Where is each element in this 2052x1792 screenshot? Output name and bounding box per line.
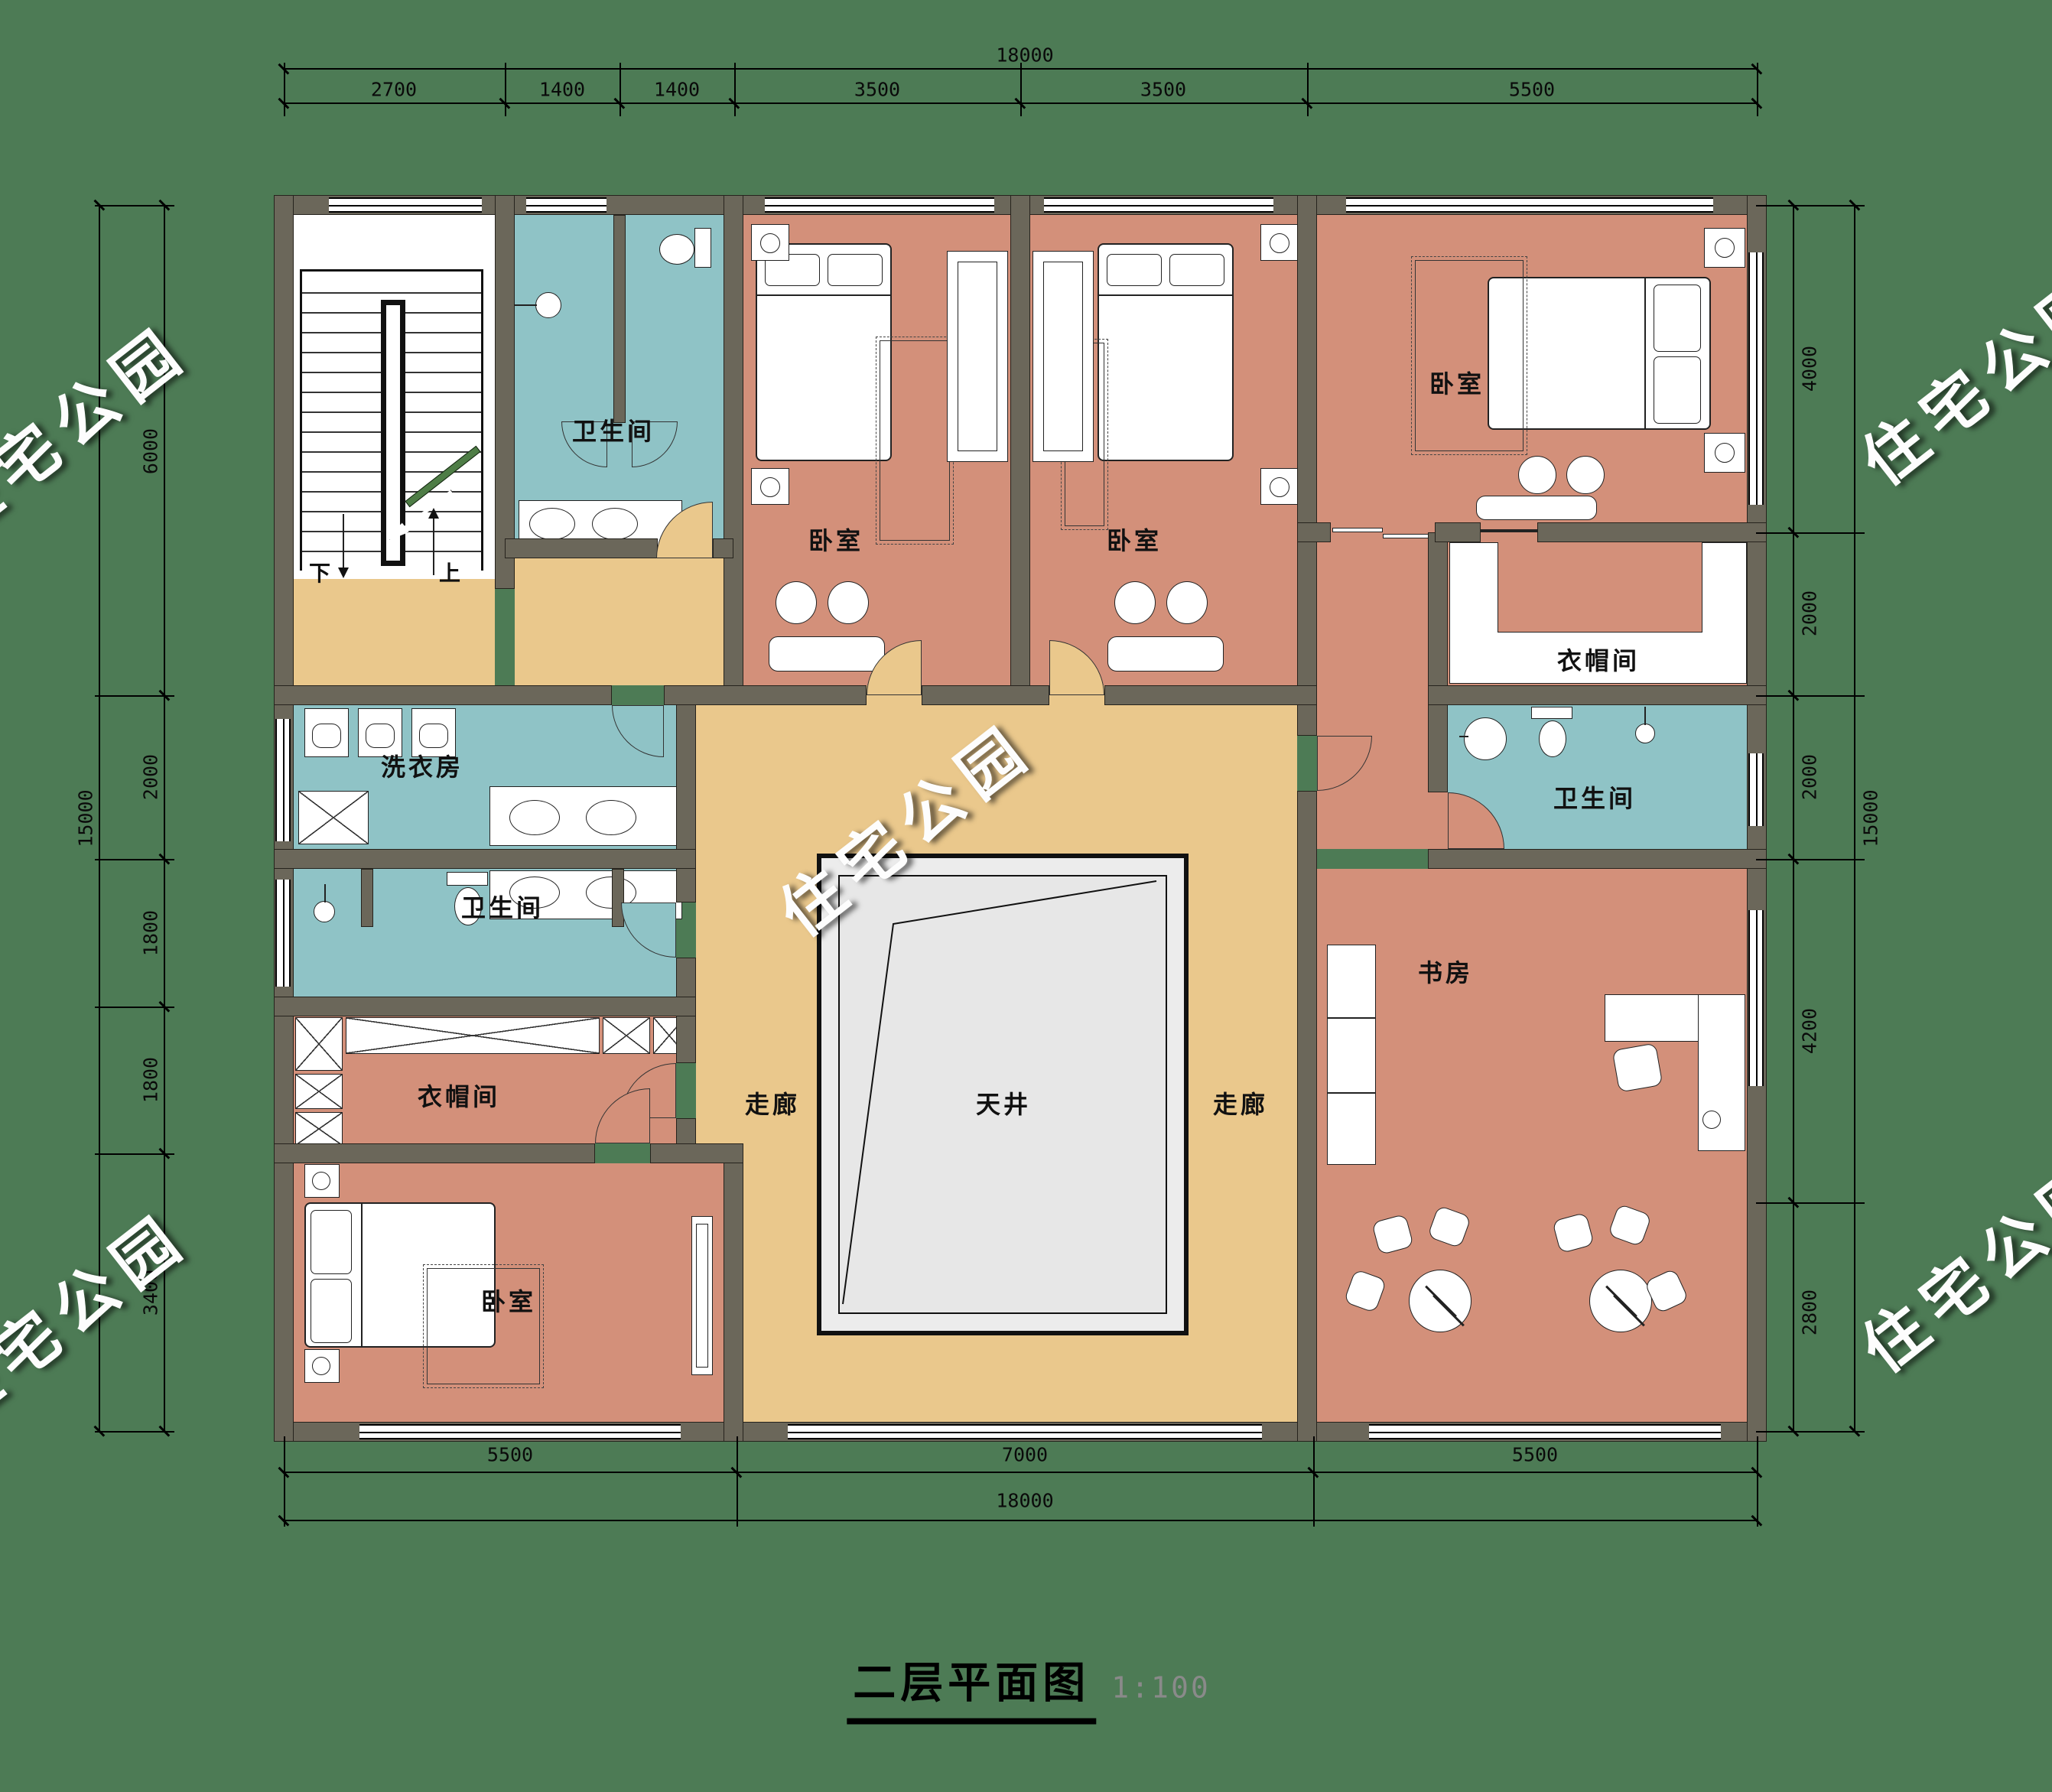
dim-bottom-3: 5500 xyxy=(1512,1444,1558,1466)
stool xyxy=(1518,456,1556,494)
drain xyxy=(314,901,335,922)
pillow xyxy=(311,1210,352,1274)
shower-tray xyxy=(298,791,369,844)
wall xyxy=(1428,685,1767,705)
dim-extension-line xyxy=(737,1436,738,1527)
corridor-floor xyxy=(294,579,495,685)
stool xyxy=(1166,581,1208,624)
wardrobe xyxy=(603,1017,650,1054)
dim-left-total: 15000 xyxy=(75,789,97,847)
dim-extension-line xyxy=(1756,1431,1865,1433)
wall xyxy=(676,695,696,903)
dim-extension-line xyxy=(95,205,174,207)
sink xyxy=(592,508,638,540)
pillow xyxy=(1107,254,1162,286)
bench xyxy=(769,636,885,672)
dim-right-3: 2000 xyxy=(1799,754,1821,800)
pillow xyxy=(828,254,883,286)
dim-bottom-1: 5500 xyxy=(487,1444,533,1466)
lamp xyxy=(312,1357,330,1375)
wall xyxy=(664,685,867,705)
dim-extension-line xyxy=(1307,63,1309,116)
dim-extension-line xyxy=(505,63,506,116)
wall xyxy=(1104,685,1317,705)
window xyxy=(1748,252,1764,505)
drain-line xyxy=(1644,707,1646,725)
wall xyxy=(274,1143,595,1163)
window xyxy=(275,719,291,841)
wall xyxy=(724,1153,743,1442)
drain-line xyxy=(324,884,326,903)
wall xyxy=(1435,522,1481,542)
dim-extension-line xyxy=(95,695,174,697)
wall xyxy=(1297,522,1331,542)
label-master-bedroom: 卧室 xyxy=(1429,365,1485,400)
toilet-tank xyxy=(694,228,711,268)
dim-left-1: 6000 xyxy=(140,428,162,474)
window xyxy=(359,1424,681,1439)
label-bedroom-b: 卧室 xyxy=(1107,522,1162,557)
dim-line xyxy=(284,1472,1757,1473)
window xyxy=(1748,910,1764,1086)
lamp xyxy=(760,477,780,497)
dim-extension-line xyxy=(284,1436,285,1527)
window xyxy=(1346,197,1713,213)
dim-right-2: 2000 xyxy=(1799,590,1821,636)
rug xyxy=(880,340,950,541)
sliding-door xyxy=(1383,534,1433,538)
drain xyxy=(1635,724,1655,743)
label-cloakroom-right: 衣帽间 xyxy=(1557,642,1640,677)
rug xyxy=(1415,260,1524,451)
bed-line xyxy=(361,1204,363,1346)
bed-line xyxy=(1099,294,1232,296)
wall xyxy=(650,1143,743,1163)
pillow xyxy=(1654,356,1701,424)
label-bedroom-bottomleft: 卧室 xyxy=(481,1283,536,1318)
dim-top-6: 5500 xyxy=(1509,79,1555,101)
stair-arrow-up-head xyxy=(428,508,439,519)
wall xyxy=(1297,195,1317,695)
dim-extension-line xyxy=(1313,1436,1315,1527)
bed-line xyxy=(757,294,890,296)
label-bedroom-a: 卧室 xyxy=(808,522,863,557)
dim-right-1: 4000 xyxy=(1799,346,1821,392)
wardrobe-door xyxy=(958,262,997,451)
lamp xyxy=(1270,233,1289,253)
window xyxy=(526,197,606,213)
dim-line xyxy=(1854,205,1855,1431)
lamp xyxy=(760,233,780,253)
dim-extension-line xyxy=(1757,63,1758,116)
wall xyxy=(1010,195,1030,695)
wall xyxy=(1428,849,1767,869)
label-bathroom-topleft: 卫生间 xyxy=(572,412,655,447)
title-text: 二层平面图 xyxy=(847,1649,1096,1725)
label-bathroom-right: 卫生间 xyxy=(1553,779,1636,815)
dim-extension-line xyxy=(95,1007,174,1008)
sink xyxy=(1464,717,1507,760)
wall xyxy=(1537,522,1767,542)
stair-up-label: 上 xyxy=(439,557,460,587)
dim-extension-line xyxy=(620,63,621,116)
dim-extension-line xyxy=(1756,1202,1865,1204)
wall xyxy=(612,869,624,927)
wall xyxy=(1297,791,1317,1442)
stool xyxy=(776,581,817,624)
desk xyxy=(1698,994,1745,1151)
dim-extension-line xyxy=(95,1431,174,1433)
wall xyxy=(505,538,658,558)
dim-top-2: 1400 xyxy=(539,79,585,101)
dim-extension-line xyxy=(1756,532,1865,534)
lamp xyxy=(1702,1111,1721,1129)
label-bathroom-left: 卫生间 xyxy=(461,889,544,924)
dim-line xyxy=(1793,205,1794,1431)
shelf-line xyxy=(1327,1017,1376,1019)
dim-right-4: 4200 xyxy=(1799,1008,1821,1054)
label-cloakroom-left: 衣帽间 xyxy=(418,1078,500,1113)
title-scale: 1:100 xyxy=(1111,1671,1210,1705)
watermark: 住宅公园 xyxy=(1839,246,2052,502)
label-study: 书房 xyxy=(1418,954,1473,989)
pillow xyxy=(1169,254,1224,286)
dim-right-total: 15000 xyxy=(1860,789,1882,847)
dim-extension-line xyxy=(1756,859,1865,860)
wardrobe xyxy=(295,1112,343,1146)
wall xyxy=(274,685,612,705)
label-lightwell: 天井 xyxy=(976,1085,1031,1120)
floor-plan-canvas: 下 上 卫生间 卧室 卧室 卧室 衣帽间 卫生间 书房 走廊 走廊 天井 洗衣房… xyxy=(0,0,2052,1792)
bed-line xyxy=(1644,278,1646,428)
stool xyxy=(1114,581,1156,624)
toilet xyxy=(659,234,694,265)
window xyxy=(275,880,291,987)
pillow xyxy=(1654,285,1701,352)
dim-bottom-total: 18000 xyxy=(996,1490,1053,1512)
stair-arrow-down-line xyxy=(343,514,344,569)
wardrobe xyxy=(346,1017,600,1054)
dim-line xyxy=(284,1520,1757,1521)
bookshelf xyxy=(1327,945,1376,1165)
dim-top-1: 2700 xyxy=(371,79,417,101)
dim-left-4: 1800 xyxy=(140,1057,162,1103)
sliding-door xyxy=(1332,528,1383,532)
dim-left-3: 1800 xyxy=(140,910,162,956)
stair-arrow-up-line xyxy=(433,517,434,575)
dim-extension-line xyxy=(1757,1436,1758,1527)
dim-extension-line xyxy=(95,859,174,860)
sink xyxy=(586,800,636,835)
wall xyxy=(724,195,743,695)
watermark: 住宅公园 xyxy=(0,300,204,556)
washer-door xyxy=(312,724,341,748)
faucet xyxy=(1459,736,1468,737)
stool xyxy=(1566,456,1605,494)
dim-bottom-2: 7000 xyxy=(1002,1444,1048,1466)
label-corridor-right: 走廊 xyxy=(1213,1085,1268,1120)
wardrobe xyxy=(295,1017,343,1071)
wall xyxy=(274,849,696,869)
corridor-floor xyxy=(515,558,724,685)
dim-top-3: 1400 xyxy=(654,79,700,101)
dim-extension-line xyxy=(284,63,285,116)
label-corridor-left: 走廊 xyxy=(745,1085,800,1120)
wall xyxy=(713,538,733,558)
bench xyxy=(1107,636,1224,672)
window xyxy=(1044,197,1273,213)
wall xyxy=(495,195,515,589)
washer-door xyxy=(419,724,448,748)
dim-top-4: 3500 xyxy=(854,79,900,101)
stair-spine-inner xyxy=(386,305,400,561)
stair-arrow-down-head xyxy=(338,568,349,578)
desk-chair xyxy=(1612,1042,1663,1092)
dim-left-2: 2000 xyxy=(140,754,162,800)
wall xyxy=(613,215,626,423)
dim-top-5: 3500 xyxy=(1140,79,1186,101)
lamp xyxy=(312,1172,330,1190)
drawing-title: 二层平面图 1:100 xyxy=(847,1649,1210,1725)
toilet xyxy=(1539,720,1566,757)
closet-open xyxy=(1498,542,1702,633)
window xyxy=(788,1424,1262,1439)
dim-extension-line xyxy=(1020,63,1022,116)
window xyxy=(1748,753,1764,826)
sliding-door xyxy=(1481,529,1537,532)
dim-extension-line xyxy=(734,63,736,116)
dim-extension-line xyxy=(95,1153,174,1155)
dim-top-total: 18000 xyxy=(996,44,1053,67)
wardrobe-door xyxy=(1043,262,1083,451)
wardrobe xyxy=(295,1074,343,1109)
window xyxy=(765,197,994,213)
pillow xyxy=(311,1279,352,1343)
lamp xyxy=(1270,477,1289,497)
toilet-tank xyxy=(447,872,488,886)
wall xyxy=(922,685,1049,705)
window xyxy=(1369,1424,1721,1439)
wall xyxy=(274,997,696,1016)
shelf-line xyxy=(1327,1092,1376,1094)
window xyxy=(329,197,482,213)
watermark: 住宅公园 xyxy=(1839,1133,2052,1390)
toilet-tank xyxy=(1531,707,1572,719)
stair-down-label: 下 xyxy=(309,557,330,587)
dim-extension-line xyxy=(1756,205,1865,207)
shower-head xyxy=(535,292,561,318)
watermark: 住宅公园 xyxy=(0,1187,204,1443)
wall xyxy=(361,869,373,927)
bench xyxy=(1476,496,1597,520)
lamp xyxy=(1715,238,1735,258)
dim-right-5: 2800 xyxy=(1799,1290,1821,1335)
tv xyxy=(696,1224,708,1368)
washer-door xyxy=(366,724,395,748)
label-laundry: 洗衣房 xyxy=(381,748,463,783)
wall xyxy=(1428,532,1448,792)
room-study xyxy=(1317,869,1747,1422)
stool xyxy=(828,581,869,624)
sink xyxy=(509,800,560,835)
dim-extension-line xyxy=(1756,695,1865,697)
lamp xyxy=(1715,443,1735,463)
sink xyxy=(529,508,575,540)
